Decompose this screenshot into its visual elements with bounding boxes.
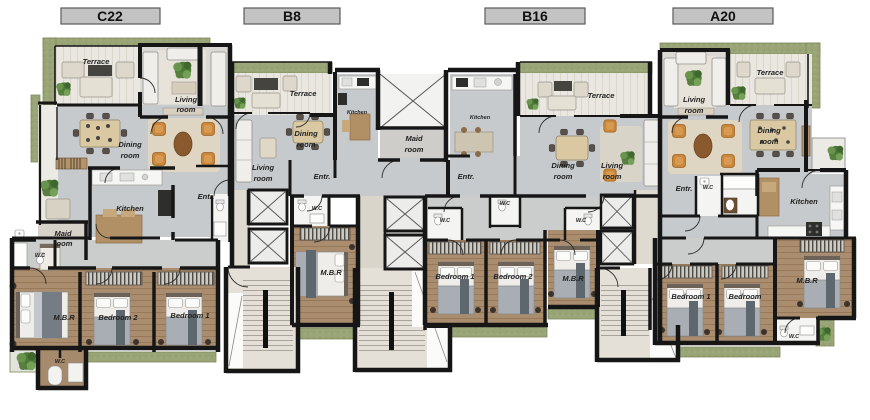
svg-text:Living: Living (683, 95, 706, 104)
svg-text:W.C: W.C (35, 253, 46, 259)
svg-text:W.C: W.C (703, 185, 714, 191)
svg-text:Living: Living (252, 163, 275, 172)
svg-text:Bedroom 1: Bedroom 1 (671, 292, 710, 301)
svg-text:W.C: W.C (440, 218, 451, 224)
svg-text:Dining: Dining (118, 140, 142, 149)
svg-text:room: room (685, 106, 704, 115)
svg-text:Kitchen: Kitchen (347, 110, 368, 116)
svg-text:Maid: Maid (54, 229, 72, 238)
svg-text:W.C: W.C (55, 359, 66, 365)
svg-text:Bedroom 1: Bedroom 1 (170, 311, 209, 320)
svg-text:Dining: Dining (294, 129, 318, 138)
svg-text:Bedroom 1: Bedroom 1 (435, 272, 474, 281)
svg-text:B16: B16 (522, 8, 548, 24)
svg-text:Dining: Dining (551, 161, 575, 170)
svg-text:room: room (297, 140, 316, 149)
svg-text:Entr.: Entr. (198, 192, 215, 201)
svg-text:W.C: W.C (312, 206, 323, 212)
svg-text:room: room (405, 145, 424, 154)
svg-text:A20: A20 (710, 8, 736, 24)
svg-text:M.B.R: M.B.R (796, 276, 818, 285)
svg-text:Bedroom 2: Bedroom 2 (493, 272, 533, 281)
svg-text:Entr.: Entr. (458, 172, 475, 181)
svg-text:C22: C22 (97, 8, 123, 24)
svg-text:W.C: W.C (789, 334, 800, 340)
svg-text:Kitchen: Kitchen (790, 197, 818, 206)
svg-text:Kitchen: Kitchen (470, 115, 491, 121)
svg-text:M.B.R: M.B.R (562, 274, 584, 283)
svg-text:B8: B8 (283, 8, 301, 24)
svg-text:Kitchen: Kitchen (116, 204, 144, 213)
svg-text:Dining: Dining (757, 126, 781, 135)
svg-text:room: room (603, 172, 622, 181)
svg-text:Entr.: Entr. (314, 172, 331, 181)
svg-text:Terrace: Terrace (290, 89, 317, 98)
svg-text:Maid: Maid (405, 134, 423, 143)
svg-text:Terrace: Terrace (588, 91, 615, 100)
svg-text:room: room (554, 172, 573, 181)
svg-text:Living: Living (175, 95, 198, 104)
svg-text:Living: Living (601, 161, 624, 170)
svg-text:Bedroom: Bedroom (729, 292, 762, 301)
svg-text:W.C: W.C (500, 201, 511, 207)
svg-text:room: room (254, 174, 273, 183)
svg-text:room: room (121, 151, 140, 160)
svg-text:Entr.: Entr. (676, 184, 693, 193)
svg-text:M.B.R: M.B.R (53, 313, 75, 322)
svg-text:Terrace: Terrace (757, 68, 784, 77)
svg-text:room: room (760, 137, 779, 146)
svg-text:room: room (54, 239, 73, 248)
svg-text:M.B.R: M.B.R (320, 268, 342, 277)
svg-text:W.C: W.C (576, 218, 587, 224)
svg-text:Bedroom 2: Bedroom 2 (98, 313, 138, 322)
svg-text:room: room (177, 105, 196, 114)
svg-text:Terrace: Terrace (83, 57, 110, 66)
